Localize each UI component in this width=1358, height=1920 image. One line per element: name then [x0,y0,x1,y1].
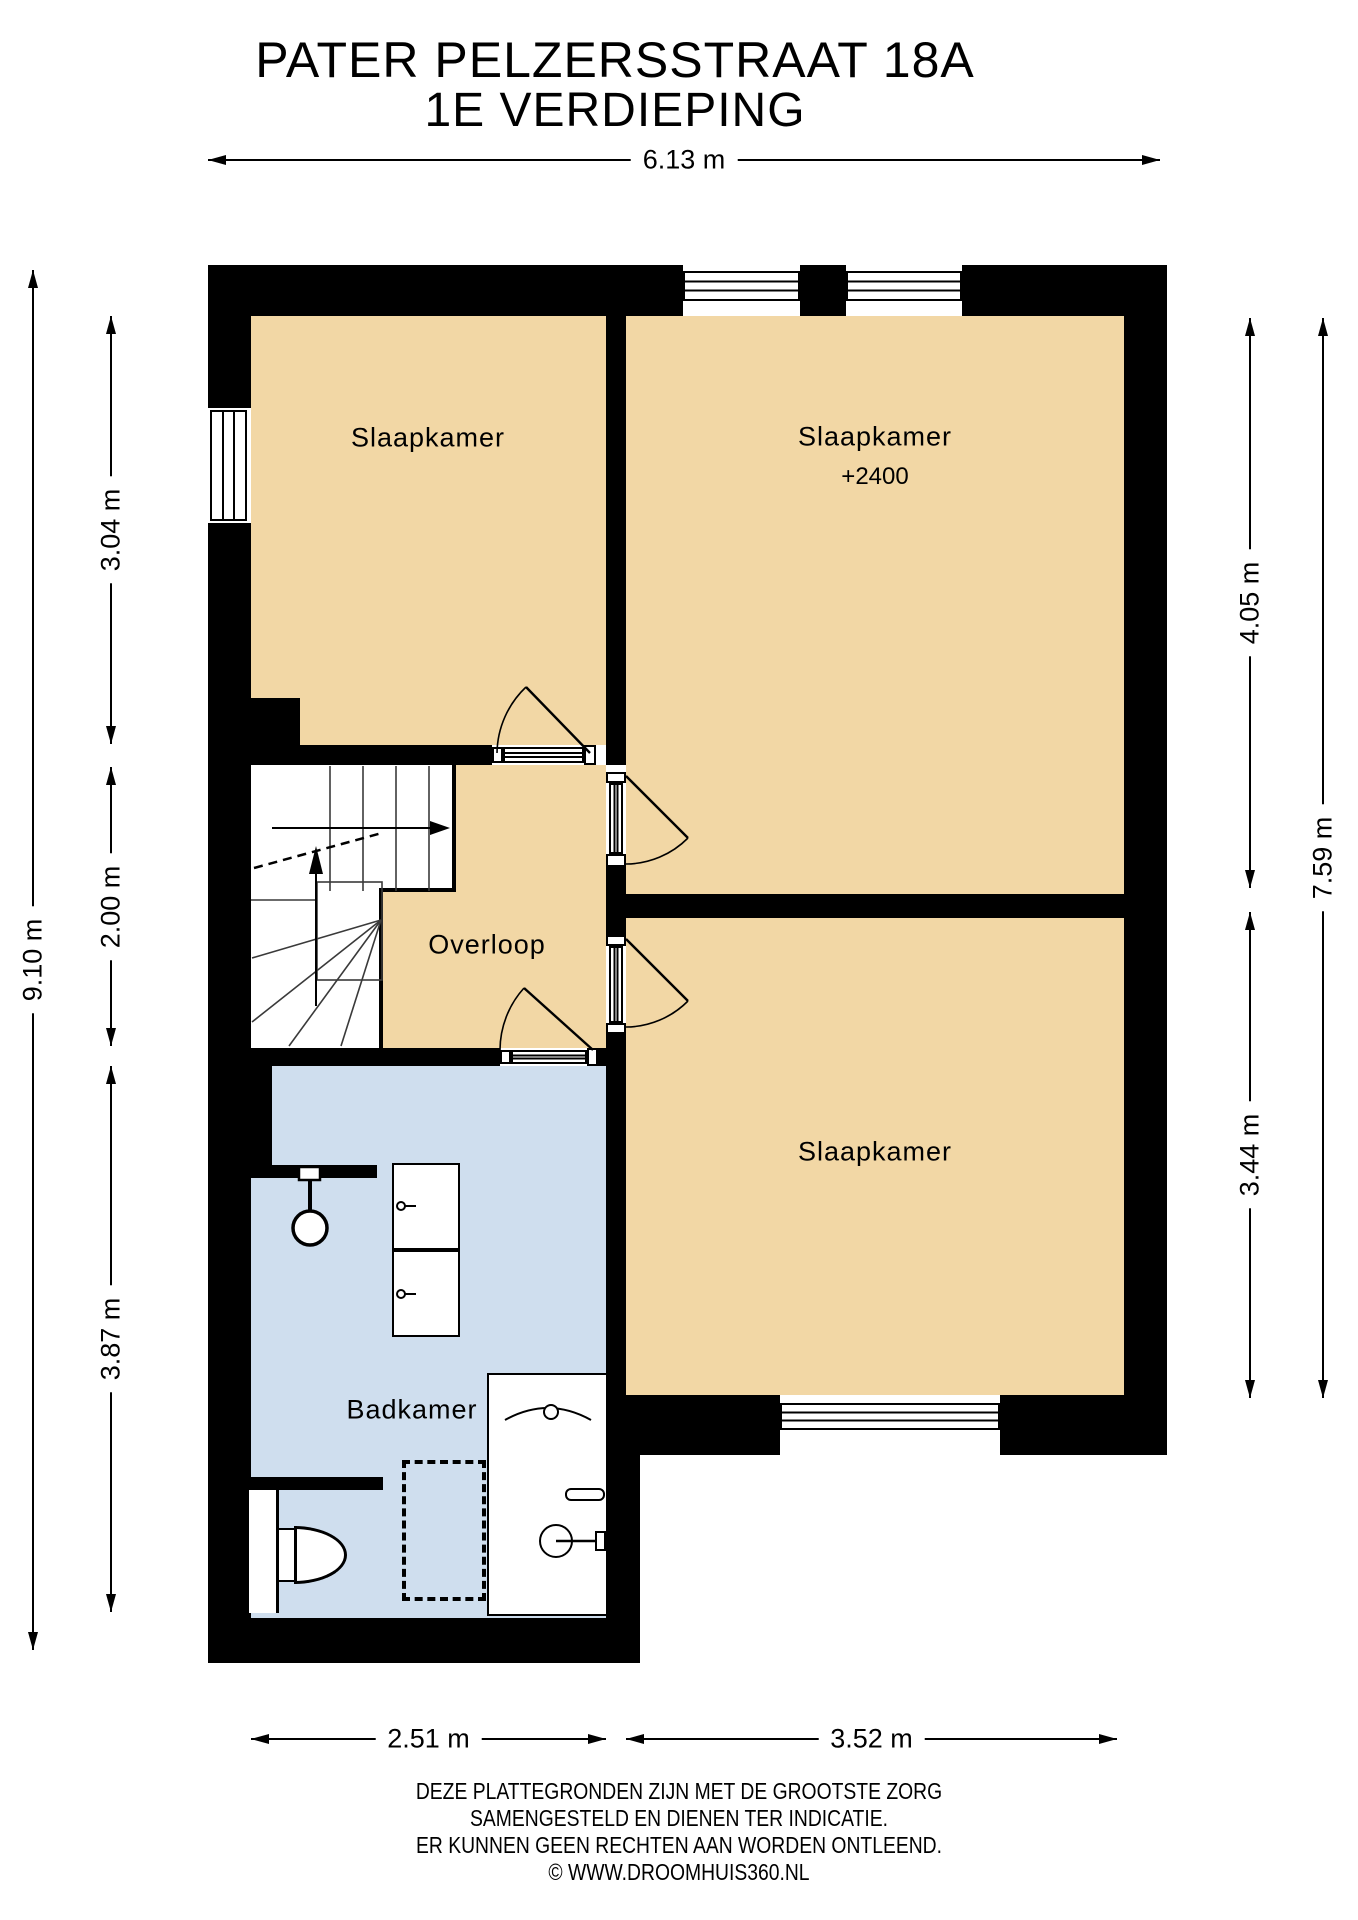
dimension-bedroom-tr-height: 4.05 m [1236,318,1264,888]
dimension-label: 7.59 m [1308,805,1339,912]
stair-treads [251,766,429,1046]
washing-machine-knobs [397,1202,416,1298]
disclaimer-line: SAMENGESTELD EN DIENEN TER INDICATIE. [109,1805,1250,1832]
dimension-label: 9.10 m [18,907,49,1014]
label-landing: Overloop [428,930,546,961]
dimension-label: 6.13 m [631,145,738,176]
bathtub-details [505,1405,605,1557]
washbasin [293,1167,327,1245]
disclaimer-line: DEZE PLATTEGRONDEN ZIJN MET DE GROOTSTE … [109,1778,1250,1805]
label-bedroom-bottom-right: Slaapkamer [798,1137,952,1168]
door-swings [497,687,688,1050]
dimension-right-total-height: 7.59 m [1309,318,1337,1398]
dimension-bottom-right-width: 3.52 m [626,1725,1117,1753]
dimension-label: 4.05 m [1235,550,1266,657]
floorplan-page: PATER PELZERSSTRAAT 18A 1E VERDIEPING [0,0,1358,1920]
dimension-bedroom-tl-height: 3.04 m [97,316,125,744]
label-bathroom: Badkamer [346,1395,477,1426]
soap-dish [566,1489,604,1500]
dimension-bottom-left-width: 2.51 m [251,1725,606,1753]
dimension-total-height-left: 9.10 m [19,270,47,1650]
dimension-label: 3.52 m [818,1724,925,1755]
dimension-label: 3.87 m [96,1286,127,1393]
disclaimer-line: ER KUNNEN GEEN RECHTEN AAN WORDEN ONTLEE… [109,1832,1250,1859]
dimension-bathroom-height: 3.87 m [97,1066,125,1612]
label-bedroom-top-left: Slaapkamer [351,423,505,454]
dimension-label: 2.51 m [375,1724,482,1755]
dimension-label: 3.04 m [96,477,127,584]
dimension-bedroom-br-height: 3.44 m [1236,912,1264,1398]
label-bedroom-top-right: Slaapkamer [798,422,952,453]
label-ceiling-height: +2400 [841,463,908,491]
dimension-total-width: 6.13 m [208,146,1160,174]
stair-direction-arrow [254,821,450,1006]
dimension-landing-height: 2.00 m [97,767,125,1046]
dimension-label: 3.44 m [1235,1102,1266,1209]
dimension-label: 2.00 m [96,853,127,960]
plan-linework [0,0,1358,1920]
disclaimer: DEZE PLATTEGRONDEN ZIJN MET DE GROOTSTE … [109,1778,1250,1886]
disclaimer-copyright: © WWW.DROOMHUIS360.NL [109,1859,1250,1886]
